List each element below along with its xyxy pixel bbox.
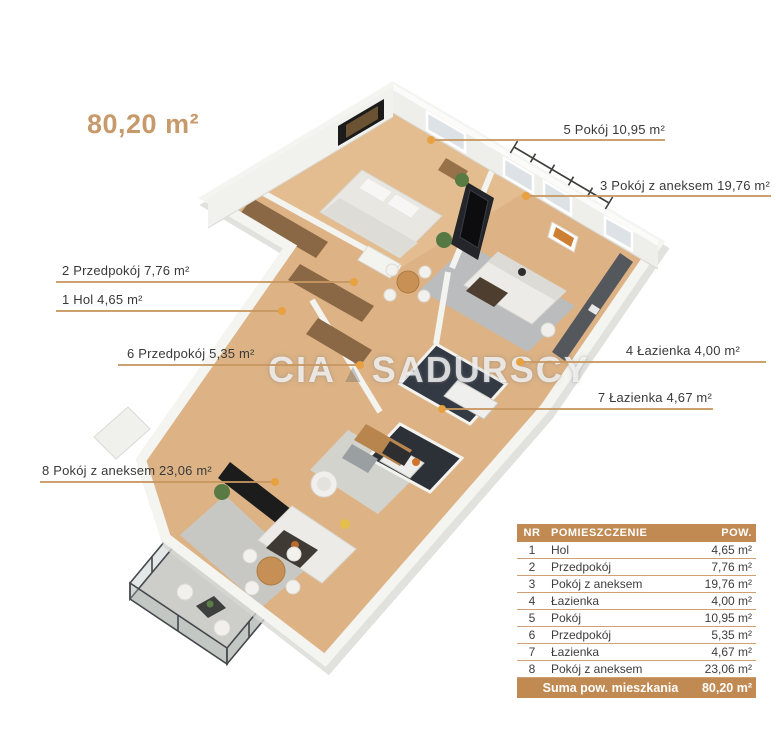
room-dot-2	[350, 278, 358, 286]
room-dot-4	[516, 358, 524, 366]
table-row: 5 Pokój 10,95 m²	[517, 610, 756, 627]
balcony-plant	[207, 601, 214, 608]
table-row: 3 Pokój z aneksem 19,76 m²	[517, 576, 756, 593]
leader-line-7	[442, 408, 713, 410]
chair	[419, 266, 431, 278]
room-dot-5	[427, 136, 435, 144]
watermark-part2: SADURSCY	[372, 349, 590, 390]
chair	[418, 290, 430, 302]
pouf	[541, 323, 555, 337]
footer-label: Suma pow. mieszkania	[517, 681, 686, 695]
header-nr: NR	[517, 527, 547, 539]
room-label-3: 3 Pokój z aneksem 19,76 m²	[600, 178, 770, 193]
chair	[286, 580, 300, 594]
table-row: 1 Hol 4,65 m²	[517, 542, 756, 559]
room-label-1: 1 Hol 4,65 m²	[62, 292, 143, 307]
room-dot-7	[438, 405, 446, 413]
leader-line-1	[56, 310, 282, 312]
footer-total-area: 80,20 m²	[686, 681, 756, 695]
dining-table	[257, 557, 285, 585]
table-row: 2 Przedpokój 7,76 m²	[517, 559, 756, 576]
total-area-title: 80,20 m²	[87, 109, 199, 140]
header-area: POW.	[686, 527, 756, 539]
room-dot-6	[356, 361, 364, 369]
leader-line-6	[118, 364, 360, 366]
plant	[436, 232, 452, 248]
table-row: 7 Łazienka 4,67 m²	[517, 644, 756, 661]
room-label-8: 8 Pokój z aneksem 23,06 m²	[42, 463, 212, 478]
room-label-2: 2 Przedpokój 7,76 m²	[62, 263, 190, 278]
balcony-chair	[177, 584, 193, 600]
room-label-4: 4 Łazienka 4,00 m²	[626, 343, 740, 358]
chair	[245, 581, 259, 595]
plant	[455, 173, 469, 187]
table-header-row: NR POMIESZCZENIE POW.	[517, 524, 756, 542]
room-label-5: 5 Pokój 10,95 m²	[564, 122, 665, 137]
table-row: 4 Łazienka 4,00 m²	[517, 593, 756, 610]
table-row: 8 Pokój z aneksem 23,06 m²	[517, 661, 756, 678]
leader-line-2	[56, 281, 354, 283]
room-dot-3	[522, 192, 530, 200]
leader-line-3	[526, 195, 771, 197]
chair	[386, 264, 398, 276]
floorplan-page: 80,20 m² CIA▲SADURSCY 5 Pokój 10,95 m² 3…	[0, 0, 776, 750]
watermark-part1: CIA	[268, 349, 336, 390]
room-label-7: 7 Łazienka 4,67 m²	[598, 390, 712, 405]
leader-line-5	[431, 139, 665, 141]
leader-line-8	[40, 481, 275, 483]
room-label-6: 6 Przedpokój 5,35 m²	[127, 346, 255, 361]
chair	[384, 289, 396, 301]
chair	[287, 547, 301, 561]
balcony-chair	[214, 620, 230, 636]
chair	[243, 549, 257, 563]
room-dot-1	[278, 307, 286, 315]
plant	[214, 484, 230, 500]
leader-line-4	[520, 361, 766, 363]
table-row: 6 Przedpokój 5,35 m²	[517, 627, 756, 644]
header-room: POMIESZCZENIE	[547, 527, 686, 539]
watermark: CIA▲SADURSCY	[268, 349, 590, 391]
table-footer-row: Suma pow. mieszkania 80,20 m²	[517, 678, 756, 698]
room-dot-8	[271, 478, 279, 486]
dining-table	[397, 271, 419, 293]
rooms-area-table: NR POMIESZCZENIE POW. 1 Hol 4,65 m² 2 Pr…	[517, 524, 756, 698]
